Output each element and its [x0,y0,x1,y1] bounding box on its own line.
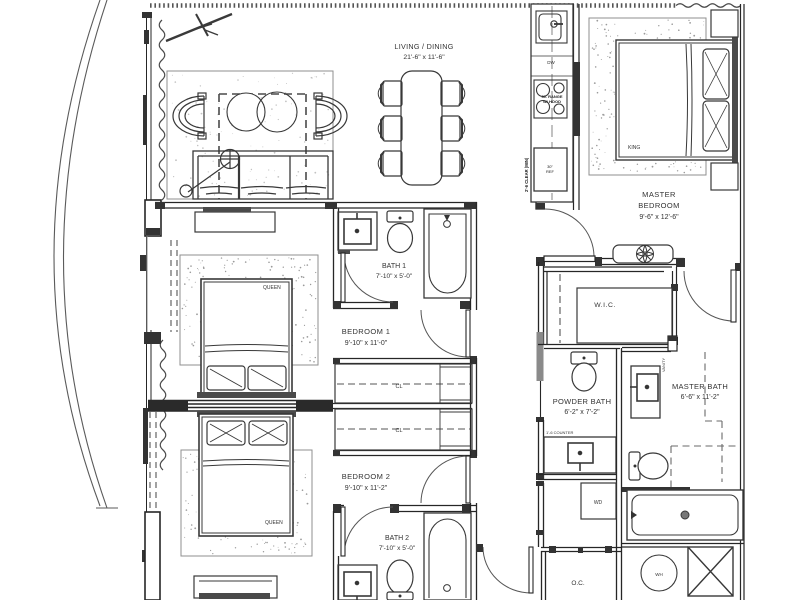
svg-text:REF: REF [546,169,555,174]
svg-text:6'-6" x 11'-2": 6'-6" x 11'-2" [681,394,720,401]
svg-text:POWDER BATH: POWDER BATH [553,397,612,406]
svg-text:WD: WD [594,500,603,506]
svg-text:BATH 2: BATH 2 [385,535,409,542]
svg-text:DW: DW [547,60,555,65]
svg-text:9'-10" x 11'-2": 9'-10" x 11'-2" [345,485,388,492]
svg-text:KING: KING [628,145,640,151]
svg-text:LIVING / DINING: LIVING / DINING [394,42,453,51]
svg-text:7'-10" x 5'-0": 7'-10" x 5'-0" [376,273,413,280]
svg-text:MASTER BATH: MASTER BATH [672,382,728,391]
svg-text:O.C.: O.C. [571,580,585,587]
svg-text:1'-6 COUNTER: 1'-6 COUNTER [546,430,574,435]
svg-text:BEDROOM 2: BEDROOM 2 [342,472,391,481]
svg-text:BATH 1: BATH 1 [382,263,406,270]
svg-text:21'-6" x 11'-6": 21'-6" x 11'-6" [403,54,445,61]
svg-text:CL: CL [395,428,402,434]
svg-text:QUEEN: QUEEN [263,285,281,291]
svg-text:6'-2" x 7'-2": 6'-2" x 7'-2" [564,409,600,416]
svg-text:9'-10" x 11'-0": 9'-10" x 11'-0" [345,340,388,347]
svg-text:QUEEN: QUEEN [265,520,283,526]
svg-text:9'-6" x 12'-6": 9'-6" x 12'-6" [639,214,679,221]
svg-text:BEDROOM: BEDROOM [638,201,680,210]
svg-text:CL: CL [395,384,402,390]
svg-text:VANITY: VANITY [661,358,666,372]
svg-text:BEDROOM 1: BEDROOM 1 [342,327,391,336]
svg-text:2'-6 CLEAR (MIN): 2'-6 CLEAR (MIN) [524,157,529,192]
svg-text:WH: WH [655,572,663,577]
svg-text:MASTER: MASTER [642,190,676,199]
svg-text:7'-10" x 5'-0": 7'-10" x 5'-0" [379,545,416,552]
svg-text:W/ HOOD: W/ HOOD [543,99,561,104]
svg-text:W.I.C.: W.I.C. [594,302,616,309]
